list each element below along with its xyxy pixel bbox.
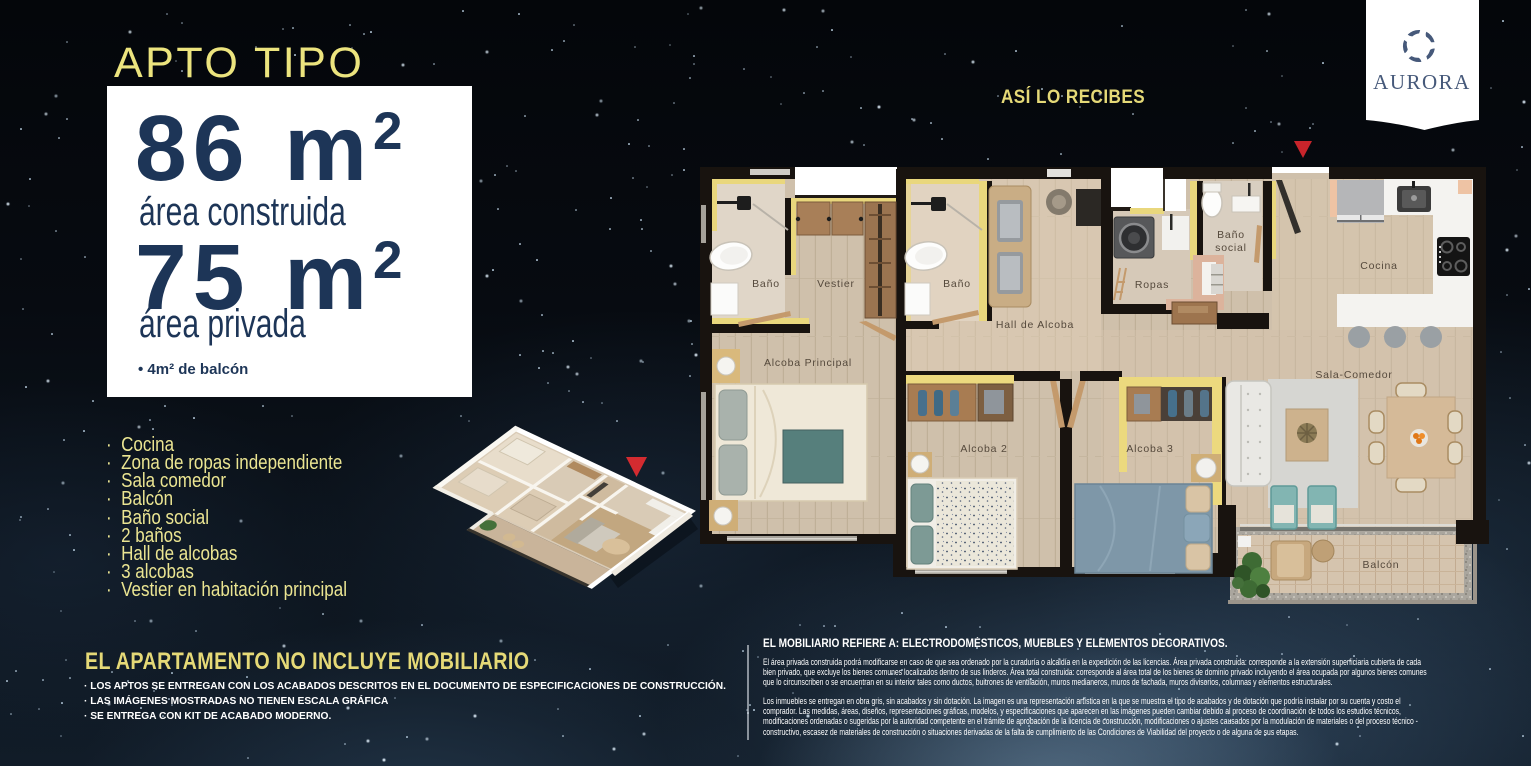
svg-text:Baño: Baño xyxy=(1217,229,1245,241)
svg-text:Baño: Baño xyxy=(752,278,780,290)
svg-text:social: social xyxy=(1215,242,1247,254)
svg-text:Hall de Alcoba: Hall de Alcoba xyxy=(996,319,1074,331)
svg-text:Baño: Baño xyxy=(943,278,971,290)
svg-text:Alcoba 2: Alcoba 2 xyxy=(960,443,1007,455)
svg-text:Alcoba 3: Alcoba 3 xyxy=(1126,443,1173,455)
svg-text:AURORA: AURORA xyxy=(1373,70,1471,94)
svg-text:Cocina: Cocina xyxy=(1360,260,1397,272)
svg-text:Vestier: Vestier xyxy=(817,278,855,290)
svg-text:Alcoba Principal: Alcoba Principal xyxy=(764,357,852,369)
svg-text:Balcón: Balcón xyxy=(1363,559,1400,571)
svg-text:Ropas: Ropas xyxy=(1135,279,1169,291)
svg-text:Sala-Comedor: Sala-Comedor xyxy=(1315,369,1392,381)
